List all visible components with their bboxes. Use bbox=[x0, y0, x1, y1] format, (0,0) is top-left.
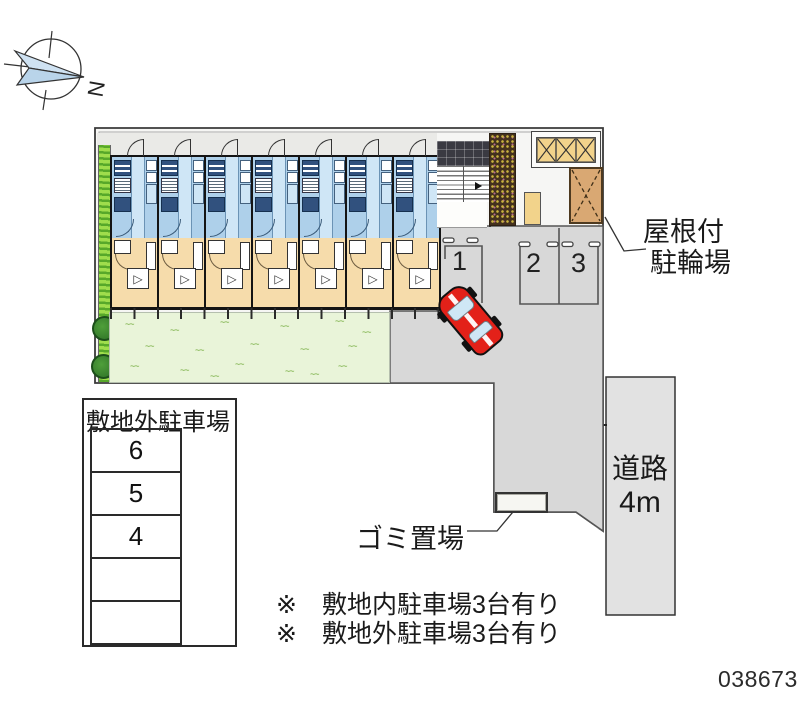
apartment-unit: ▷ bbox=[253, 157, 300, 307]
toilet-fixture bbox=[302, 197, 319, 212]
counter-fixture bbox=[255, 240, 272, 254]
staircase bbox=[437, 141, 491, 227]
balcony-posts bbox=[110, 308, 440, 319]
counter-fixture bbox=[396, 240, 413, 254]
note-offsite-parking: ※ 敷地外駐車場3台有り bbox=[276, 620, 561, 649]
counter-fixture bbox=[302, 240, 319, 254]
unit-main-room: ▷ bbox=[159, 238, 204, 307]
parking-space-number-2: 2 bbox=[526, 248, 541, 279]
unit-wet-area bbox=[253, 157, 298, 238]
apartment-unit: ▷ bbox=[112, 157, 159, 307]
grass-tuft: ~~ bbox=[220, 319, 229, 325]
entrance-walkway bbox=[97, 133, 437, 155]
unit-main-room: ▷ bbox=[253, 238, 298, 307]
unit-wet-area bbox=[394, 157, 439, 238]
garbage-station bbox=[495, 492, 548, 513]
bike-rack-cells bbox=[536, 137, 596, 163]
stair-upper-landing bbox=[437, 141, 489, 166]
parking-space-number-3: 3 bbox=[571, 248, 586, 279]
kitchen-fixture bbox=[208, 160, 225, 176]
grass-tuft: ~~ bbox=[210, 373, 219, 379]
bike-shed-label: 屋根付 駐輪場 bbox=[643, 217, 731, 279]
apartment-unit: ▷ bbox=[159, 157, 206, 307]
unit-main-room: ▷ bbox=[112, 238, 157, 307]
grass-tuft: ~~ bbox=[180, 367, 189, 373]
unit-wet-area bbox=[206, 157, 251, 238]
apartment-unit: ▷ bbox=[347, 157, 394, 307]
window-symbol: ▷ bbox=[268, 268, 290, 289]
toilet-fixture bbox=[208, 197, 225, 212]
compass: N bbox=[4, 31, 110, 110]
offsite-parking-table: 敷地外駐車場 654 bbox=[82, 398, 237, 647]
counter-fixture bbox=[161, 240, 178, 254]
stair-lower-landing bbox=[437, 202, 487, 228]
tiled-walkway bbox=[489, 133, 516, 226]
grass-tuft: ~~ bbox=[195, 347, 204, 353]
apartment-unit: ▷ bbox=[394, 157, 439, 307]
grass-tuft: ~~ bbox=[235, 361, 244, 367]
counter-fixture bbox=[349, 240, 366, 254]
toilet-fixture bbox=[161, 197, 178, 212]
unit-wet-area bbox=[112, 157, 157, 238]
closet-fixture bbox=[334, 242, 344, 270]
grass-tuft: ~~ bbox=[280, 323, 289, 329]
kitchen-fixture bbox=[349, 160, 366, 176]
bike-shed-leader-line bbox=[605, 217, 646, 251]
toilet-fixture bbox=[255, 197, 272, 212]
bath-fixture bbox=[255, 178, 272, 193]
grass-tuft: ~~ bbox=[170, 327, 179, 333]
closet-fixture bbox=[146, 242, 156, 270]
grass-tuft: ~~ bbox=[310, 371, 319, 377]
window-symbol: ▷ bbox=[409, 268, 431, 289]
kitchen-fixture bbox=[302, 160, 319, 176]
covered-bike-shed bbox=[569, 167, 603, 224]
grass-tuft: ~~ bbox=[338, 363, 347, 369]
toilet-fixture bbox=[396, 197, 413, 212]
bath-fixture bbox=[396, 178, 413, 193]
unit-wet-area bbox=[159, 157, 204, 238]
grass-tuft: ~~ bbox=[250, 341, 259, 347]
grass-tuft: ~~ bbox=[145, 343, 154, 349]
stair-direction-arrow-icon bbox=[475, 182, 482, 190]
bath-fixture bbox=[114, 178, 131, 193]
toilet-fixture bbox=[114, 197, 131, 212]
unit-wet-area bbox=[347, 157, 392, 238]
closet-fixture bbox=[193, 242, 203, 270]
window-symbol: ▷ bbox=[174, 268, 196, 289]
plan-notes: ※ 敷地内駐車場3台有り ※ 敷地外駐車場3台有り bbox=[276, 591, 561, 649]
unit-wet-area bbox=[300, 157, 345, 238]
toilet-fixture bbox=[349, 197, 366, 212]
kitchen-fixture bbox=[114, 160, 131, 176]
bath-fixture bbox=[302, 178, 319, 193]
unit-main-room: ▷ bbox=[394, 238, 439, 307]
apartment-building: ▷ ▷ ▷ bbox=[110, 155, 441, 310]
apartment-unit: ▷ bbox=[206, 157, 253, 307]
counter-fixture bbox=[114, 240, 131, 254]
closet-fixture bbox=[287, 242, 297, 270]
road-label: 道路 4m bbox=[604, 452, 676, 520]
offsite-parking-cells: 654 bbox=[90, 428, 182, 645]
apartment-unit: ▷ bbox=[300, 157, 347, 307]
compass-north-label: N bbox=[82, 79, 109, 99]
offsite-parking-cell bbox=[92, 602, 180, 643]
offsite-parking-cell: 4 bbox=[92, 516, 180, 559]
offsite-parking-cell: 5 bbox=[92, 473, 180, 516]
kitchen-fixture bbox=[396, 160, 413, 176]
site-plan: N ~~~~~~~~~~~~~~~~~~~~~~~~~~~~~~~~~~~~ ▷ bbox=[0, 0, 800, 727]
grass-tuft: ~~ bbox=[300, 346, 309, 352]
window-symbol: ▷ bbox=[362, 268, 384, 289]
kitchen-fixture bbox=[161, 160, 178, 176]
unit-main-room: ▷ bbox=[300, 238, 345, 307]
window-symbol: ▷ bbox=[315, 268, 337, 289]
grass-tuft: ~~ bbox=[348, 343, 357, 349]
plan-number: 038673 bbox=[718, 666, 798, 693]
closet-fixture bbox=[428, 242, 438, 270]
closet-fixture bbox=[381, 242, 391, 270]
parking-space-number-1: 1 bbox=[452, 246, 467, 277]
window-symbol: ▷ bbox=[127, 268, 149, 289]
grass-tuft: ~~ bbox=[362, 329, 371, 335]
lawn-area: ~~~~~~~~~~~~~~~~~~~~~~~~~~~~~~~~~~~~ bbox=[109, 312, 390, 383]
offsite-parking-cell: 6 bbox=[92, 430, 180, 473]
unit-main-room: ▷ bbox=[347, 238, 392, 307]
grass-tuft: ~~ bbox=[130, 363, 139, 369]
utility-box bbox=[524, 192, 541, 225]
bath-fixture bbox=[208, 178, 225, 193]
garbage-label: ゴミ置場 bbox=[356, 517, 464, 556]
bath-fixture bbox=[349, 178, 366, 193]
window-symbol: ▷ bbox=[221, 268, 243, 289]
counter-fixture bbox=[208, 240, 225, 254]
bath-fixture bbox=[161, 178, 178, 193]
closet-fixture bbox=[240, 242, 250, 270]
unit-main-room: ▷ bbox=[206, 238, 251, 307]
grass-tuft: ~~ bbox=[285, 368, 294, 374]
shed-cross-marks bbox=[571, 169, 601, 222]
kitchen-fixture bbox=[255, 160, 272, 176]
note-onsite-parking: ※ 敷地内駐車場3台有り bbox=[276, 591, 561, 620]
offsite-parking-cell bbox=[92, 559, 180, 602]
grass-tuft: ~~ bbox=[125, 321, 134, 327]
bike-rack bbox=[531, 131, 601, 168]
